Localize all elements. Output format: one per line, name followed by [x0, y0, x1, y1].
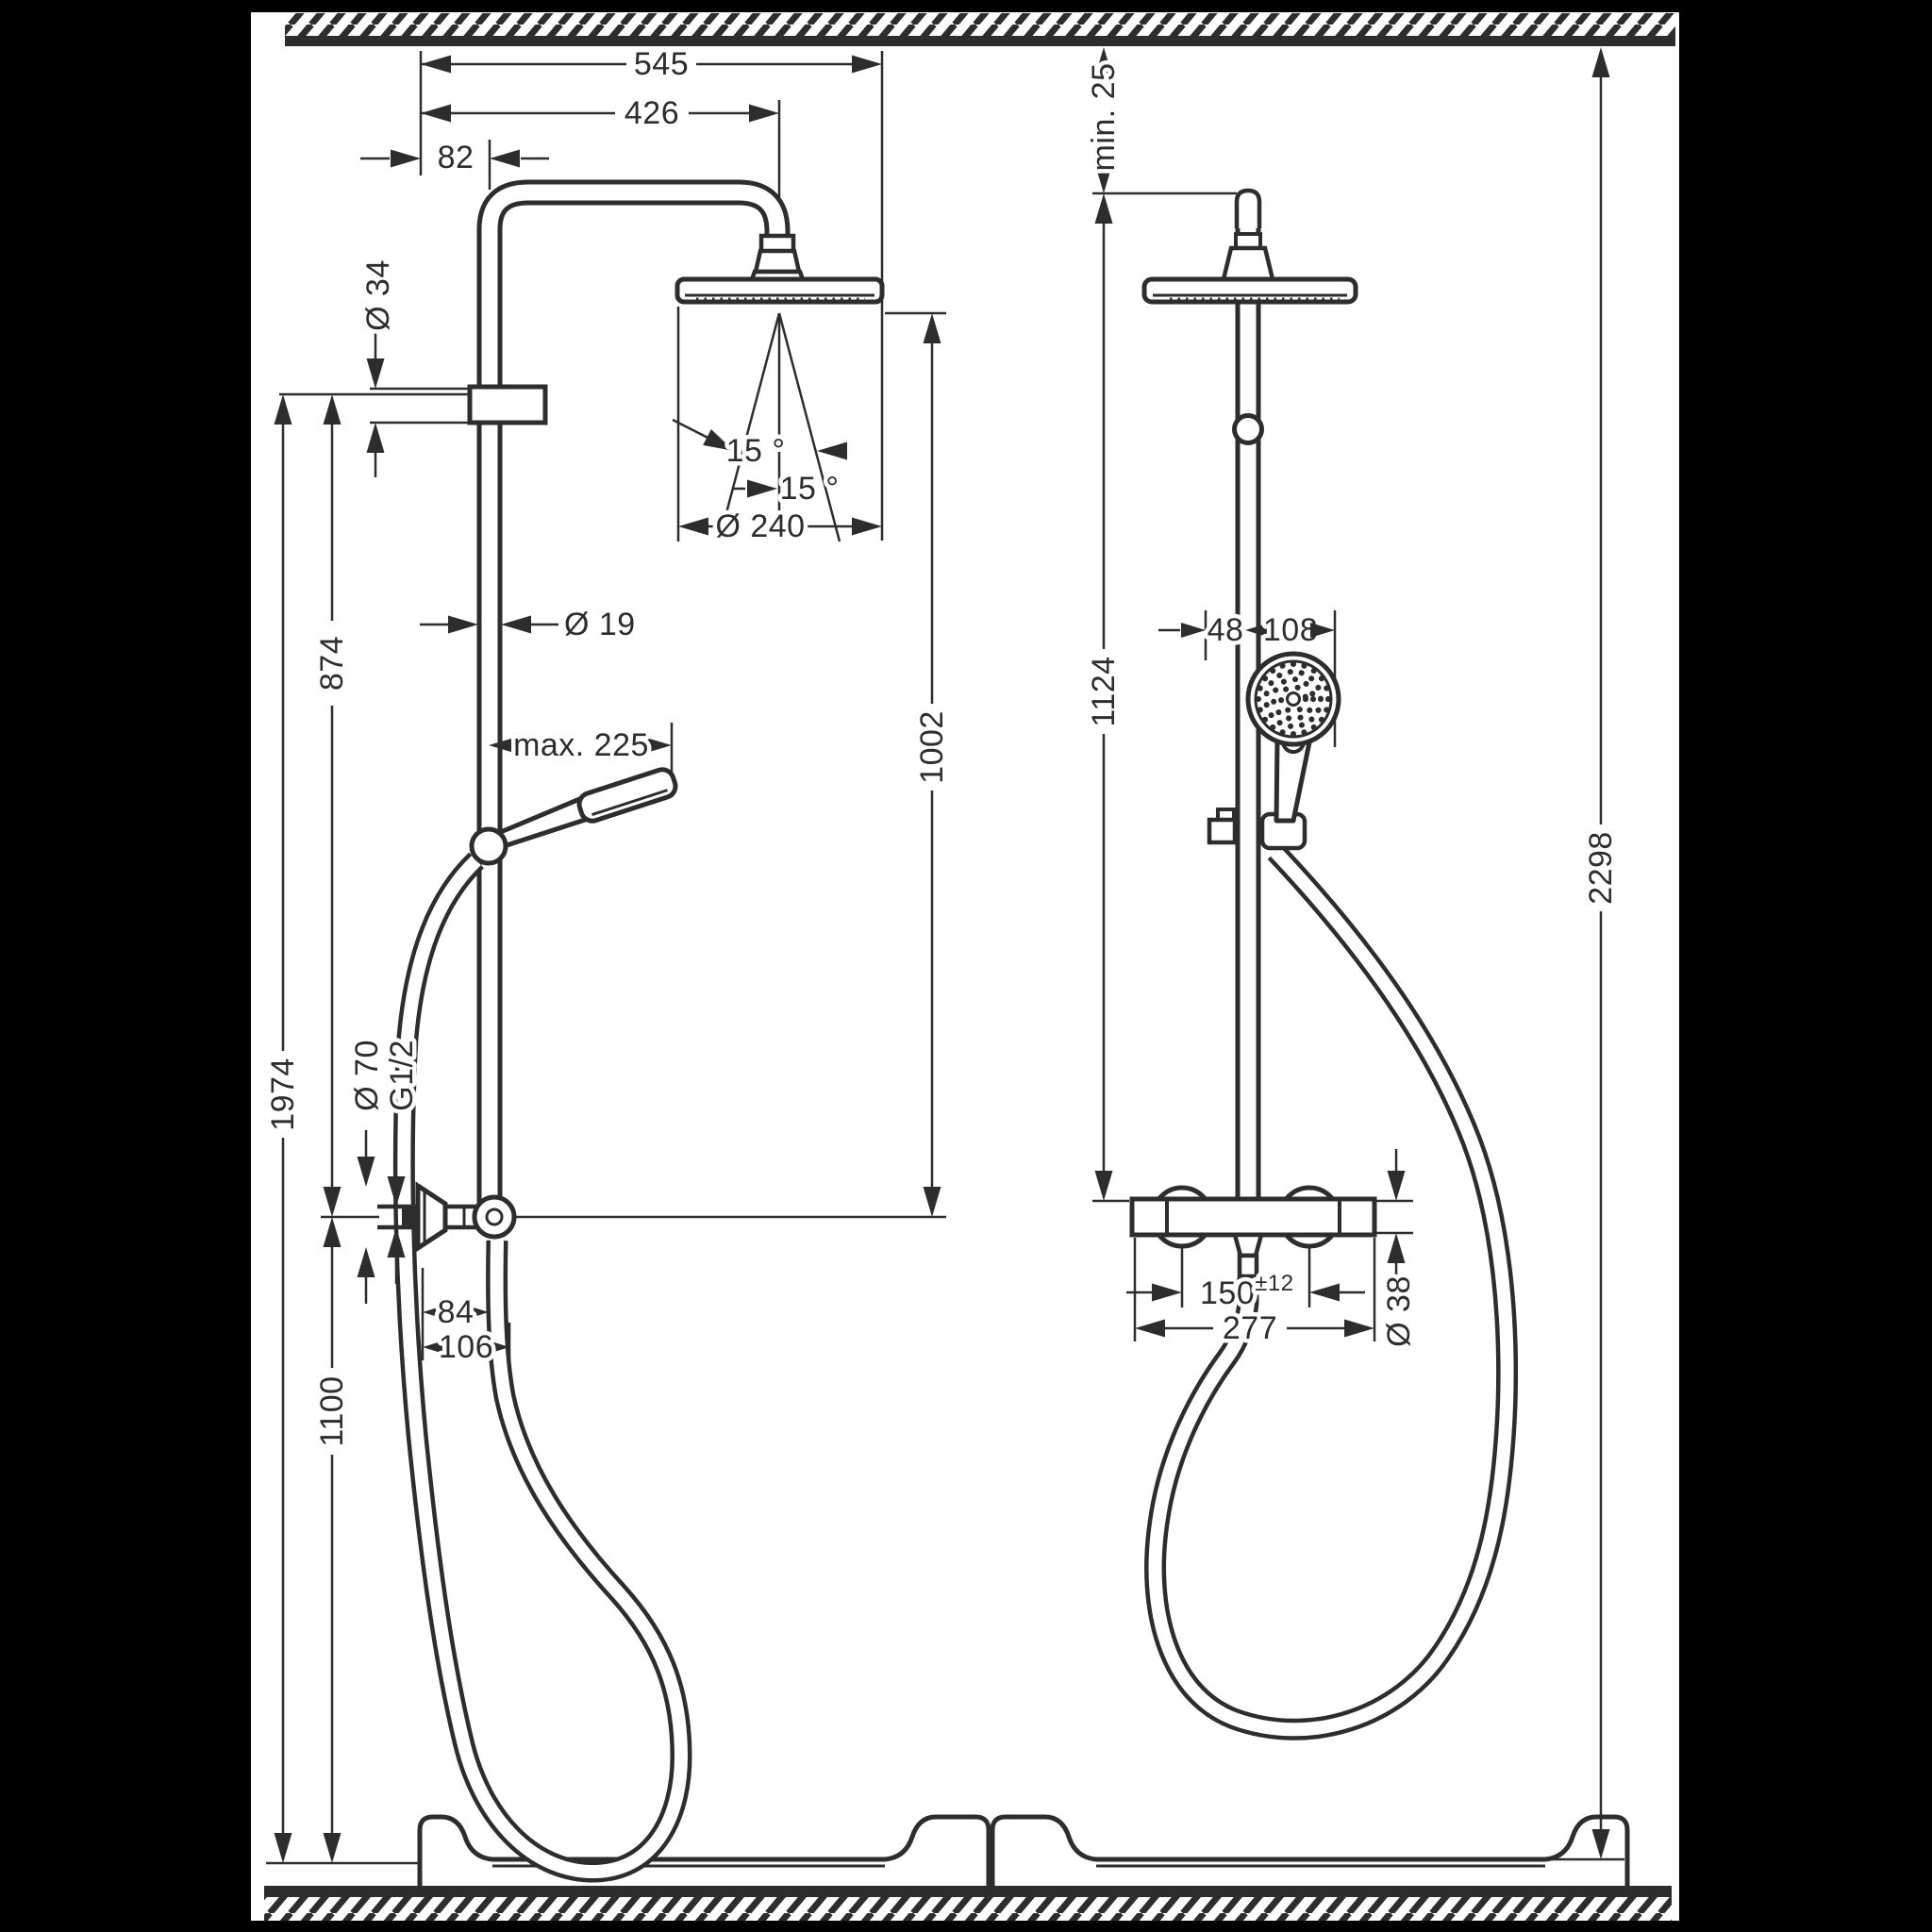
ceiling-hatch-band: [285, 13, 1675, 46]
dim-15a-label: 15 °: [726, 433, 786, 469]
overhead-head-plate: [677, 279, 882, 302]
dim-o34-label: Ø 34: [360, 259, 396, 331]
dim-o70-label: Ø 70: [349, 1040, 385, 1111]
front-wall-bracket: [470, 387, 545, 423]
dim-2298-label: 2298: [1583, 831, 1619, 905]
dim-48-label: 48: [1207, 612, 1244, 648]
dim-108-label: 108: [1263, 612, 1318, 648]
dim-o19-label: Ø 19: [564, 607, 636, 642]
dim-o240-label: Ø 240: [715, 508, 805, 544]
spray-face-outer: [1248, 654, 1339, 744]
dim-150-tolerance: ±12: [1255, 1271, 1293, 1296]
dim-max225-label: max. 225: [513, 727, 649, 763]
dim-o38-label: Ø 38: [1381, 1275, 1417, 1347]
dim-82-label: 82: [438, 140, 475, 175]
dim-min25-label: min. 25: [1086, 63, 1122, 172]
head-cone-upper: [756, 251, 799, 272]
dim-1124-label: 1124: [1086, 656, 1122, 726]
floor-hatch-band: [264, 1886, 1672, 1921]
dim-277-label: 277: [1223, 1310, 1277, 1346]
dim-106-label: 106: [439, 1329, 493, 1365]
dim-g12-label: G1/2: [384, 1040, 420, 1111]
dim-reach: max. 225: [489, 727, 672, 763]
dim-84-label: 84: [438, 1294, 475, 1330]
dim-426-label: 426: [625, 95, 679, 131]
dim-15b-label: 15 °: [780, 471, 840, 507]
head-cone: [1224, 248, 1273, 279]
slider-holder: [472, 829, 506, 863]
hose-outlet: [1235, 1235, 1261, 1256]
stub-seal: [402, 1205, 417, 1229]
dim-545-label: 545: [634, 46, 689, 82]
dim-1100-label: 1100: [314, 1375, 350, 1446]
dim-1974-label: 1974: [265, 1058, 301, 1131]
technical-drawing: 545 426 82 Ø 34 874 1974: [0, 0, 1932, 1932]
hose-pivot: [475, 1197, 514, 1237]
dim-1002-label: 1002: [914, 710, 950, 784]
dim-874-label: 874: [314, 636, 350, 691]
pipe-ball-joint: [1235, 416, 1262, 443]
drawing-canvas: 545 426 82 Ø 34 874 1974: [0, 0, 1932, 1932]
pipe-top-cap: [1237, 191, 1259, 228]
